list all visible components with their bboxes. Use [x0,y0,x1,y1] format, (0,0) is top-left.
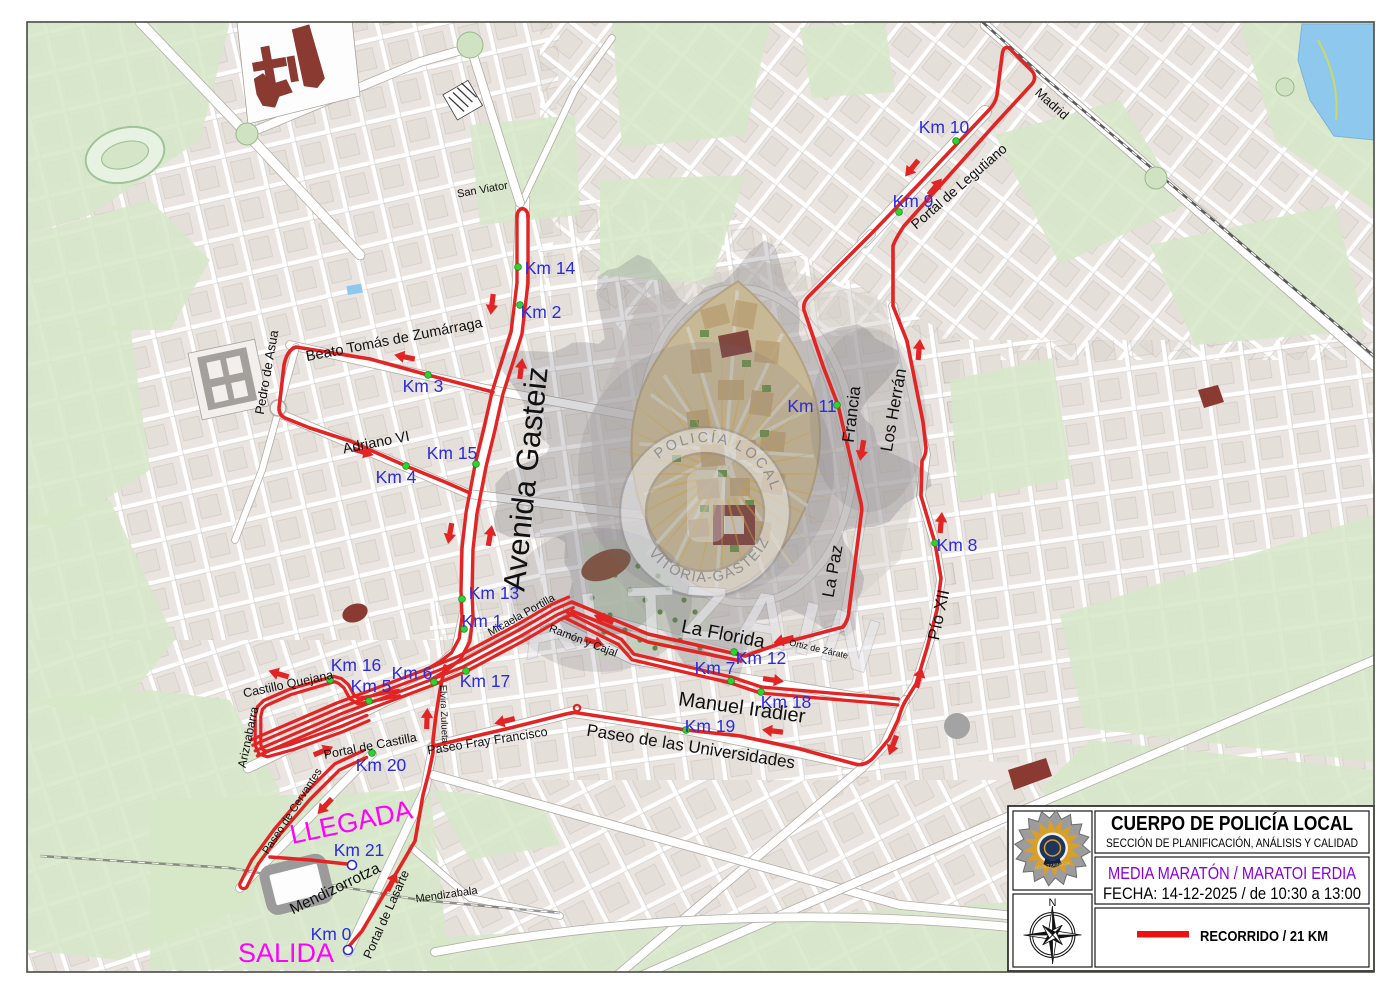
svg-text:FECHA: 14-12-2025 / de 10:30 a: FECHA: 14-12-2025 / de 10:30 a 13:00 [1103,884,1361,903]
svg-text:SALIDA: SALIDA [238,938,334,968]
svg-text:Elvira Zulueta: Elvira Zulueta [437,685,450,744]
svg-text:MEDIA MARATÓN / MARATOI ERDIA: MEDIA MARATÓN / MARATOI ERDIA [1108,862,1356,883]
svg-text:Km 11: Km 11 [787,396,836,416]
svg-text:Km 9: Km 9 [893,191,934,211]
svg-text:Km 4: Km 4 [376,467,417,487]
svg-text:Km 14: Km 14 [525,258,576,278]
svg-text:Km 10: Km 10 [919,117,970,137]
svg-text:Km 7: Km 7 [695,658,736,678]
svg-text:Km 17: Km 17 [460,671,511,691]
svg-text:Km 21: Km 21 [334,840,385,860]
svg-text:Km 2: Km 2 [521,302,562,322]
svg-text:Km 18: Km 18 [761,692,812,712]
svg-text:Km 6: Km 6 [392,663,433,683]
svg-text:Km 3: Km 3 [403,376,444,396]
svg-text:Km 13: Km 13 [469,583,520,603]
svg-text:Km 16: Km 16 [331,655,382,675]
svg-text:CUERPO DE POLICÍA LOCAL: CUERPO DE POLICÍA LOCAL [1111,812,1353,835]
svg-text:Km 12: Km 12 [736,648,787,668]
svg-text:Km 1: Km 1 [462,611,503,631]
svg-text:Km 20: Km 20 [356,755,407,775]
svg-text:Km 19: Km 19 [685,716,736,736]
svg-text:N: N [1049,897,1057,909]
svg-text:Km 5: Km 5 [351,676,392,696]
svg-text:SECCIÓN DE PLANIFICACIÓN, ANÁL: SECCIÓN DE PLANIFICACIÓN, ANÁLISIS Y CAL… [1106,835,1358,850]
svg-text:RECORRIDO / 21 KM: RECORRIDO / 21 KM [1200,928,1328,945]
svg-text:Km 15: Km 15 [427,443,478,463]
svg-text:Km 8: Km 8 [937,535,978,555]
